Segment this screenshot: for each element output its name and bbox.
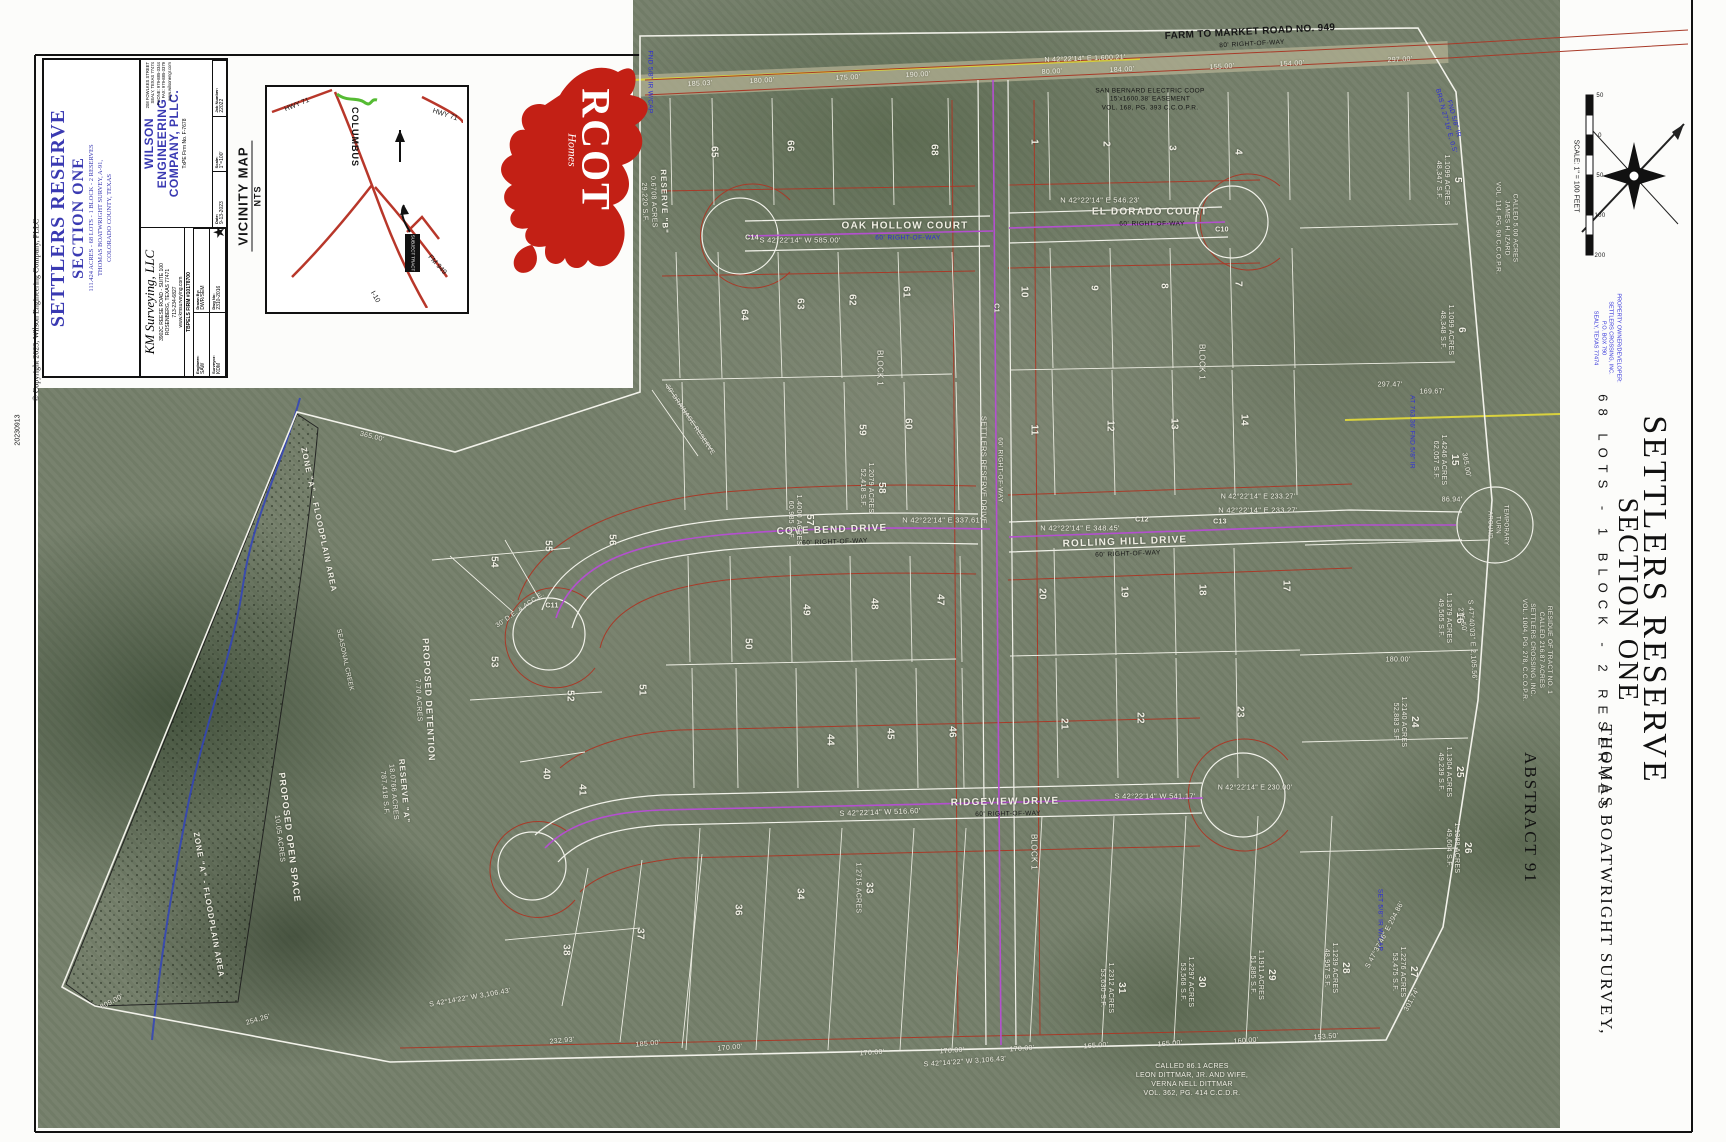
lot-number: 53 (489, 656, 500, 668)
surveyor-block: KM Surveying, LLC 3902C REESE ROAD - SUI… (141, 227, 226, 376)
rcot-homes-logo-text: RCOT Homes (567, 88, 614, 212)
lot-number: 50 (743, 638, 754, 650)
lot-number: 51 (637, 684, 648, 696)
reserve-b-label: RESERVE "B" 0.6708 ACRES 29,220 S.F. (638, 169, 670, 235)
oak-hollow-bearing: S 42°22'14" W 585.00' (759, 236, 840, 245)
lot-label: 61.1099 ACRES48,348 S.F. (1437, 305, 1467, 356)
vicinity-north-arrow-icon (395, 130, 405, 162)
field-drawnby-value: DWR/SEM (200, 285, 206, 309)
lot-number: 23 (1235, 706, 1246, 718)
lot-number: 48 (869, 598, 880, 610)
lot-label: 261.1388 ACRES49,604 S.F. (1443, 823, 1473, 874)
lot-number: 9 (1089, 285, 1100, 291)
lot-label: 151.4246 ACRES62,057 S.F. (1430, 435, 1460, 486)
electric-easement-note: SAN BERNARD ELECTRIC COOP 15'x1600.38' E… (1095, 87, 1204, 112)
dimension-label: 154.00' (1279, 60, 1304, 68)
lot-number: 65 (709, 146, 720, 158)
plat-title-line2: SECTION ONE (70, 60, 88, 376)
scale-tick: 0 (1598, 133, 1602, 139)
block1-label-1: BLOCK 1 (876, 350, 885, 386)
field-date-value: 9-13-2023 (219, 201, 225, 224)
dimension-label: 190.00' (905, 71, 930, 79)
block1-label-3: BLOCK 1 (1030, 834, 1039, 870)
dittmar-line1: CALLED 86.1 ACRES (1136, 1062, 1248, 1071)
dimension-label: 175.00' (835, 74, 860, 82)
ridgeview-bearing-east: S 42°22'14" W 541.17' (1114, 792, 1195, 801)
curve-label: C13 (1213, 519, 1227, 526)
lot-number: 61 (901, 286, 912, 298)
temporary-turnaround-label: TEMPORARY TURN AROUND (1485, 505, 1508, 546)
title-block: SETTLERS RESERVE SECTION ONE 111.424 ACR… (42, 58, 228, 378)
curve-label: C1 (993, 303, 1000, 313)
floodplain-area (66, 414, 318, 1006)
dittmar-line2: LEON DITTMAR, JR. AND WIFE, (1136, 1071, 1248, 1080)
rcot-brand: RCOT (577, 88, 613, 212)
lot-number: 7 (1233, 281, 1244, 287)
dimension-label: N 42°22'14" E 233.27' (1221, 494, 1296, 501)
scale-tick: 50 (1596, 173, 1603, 179)
dimension-label: 184.00' (1109, 66, 1134, 74)
dittmar-line3: VERNA NELL DITTMAR (1136, 1080, 1248, 1089)
residue-line2: CALLED 216.87 ACRES (1536, 599, 1544, 702)
surveyor-name: KM Surveying, LLC (141, 228, 159, 376)
ridgeview-drive-label: RIDGEVIEW DRIVE (951, 796, 1060, 809)
lot-number: 12 (1105, 420, 1116, 432)
curve-label: C12 (1135, 517, 1149, 524)
lot-label: 331.2715 ACRES (853, 863, 874, 914)
lot-number: 38 (561, 944, 572, 956)
lot-number: 34 (795, 888, 806, 900)
dimension-label: 180.00' (749, 77, 774, 85)
lot-number: 21 (1059, 718, 1070, 730)
scale-tick: 200 (1595, 253, 1606, 259)
lot-number: 59 (857, 424, 868, 436)
field-engineer-value: SAW (200, 363, 206, 374)
lot-number: 45 (885, 728, 896, 740)
oak-hollow-row-label: 60' RIGHT-OF-WAY (875, 235, 941, 242)
block1-label-2: BLOCK 1 (1198, 344, 1207, 380)
easement-line2: 15'x1600.38' EASEMENT (1095, 96, 1204, 104)
easement-line1: SAN BERNARD ELECTRIC COOP (1095, 87, 1204, 95)
easement-line3: VOL. 168, PG. 393 C.C.O.P.R. (1095, 104, 1204, 112)
lot-label: 291.1911 ACRES51,885 S.F. (1247, 950, 1277, 1000)
owner-line3: P.O. BOX 790 (1598, 293, 1606, 382)
settlers-reserve-drive-label: SETTLERS RESERVE DRIVE (980, 416, 989, 524)
vicinity-site-label: SUBJECT TRACT (411, 235, 416, 272)
curve-label: C14 (745, 235, 759, 242)
lot-number: 18 (1197, 584, 1208, 596)
engineer-fields: Date:9-13-2023 Scale:1"=100' Job Number:… (212, 60, 226, 227)
lot-number: 11 (1029, 424, 1040, 435)
lot-number: 3 (1167, 145, 1178, 151)
lot-number: 46 (947, 726, 958, 738)
lot-number: 41 (577, 784, 588, 796)
lot-number: 49 (801, 604, 812, 616)
engineer-block: WILSON ENGINEERING COMPANY, PLLC. TxPE F… (141, 60, 226, 227)
field-dwgno-value: 2310-2016 (216, 286, 222, 310)
lot-number: 13 (1169, 418, 1180, 430)
lot-number: 55 (543, 540, 554, 552)
izard-adjoiner-note: CALLED 5.00 ACRES JAMES H. IZARD VOL. 11… (1493, 182, 1518, 274)
yellow-utility-line (1345, 414, 1560, 420)
lot-number: 47 (935, 594, 946, 606)
ridgeview-row-label: 60' RIGHT-OF-WAY (975, 810, 1041, 818)
field-surveyor-value: KDM (216, 363, 222, 374)
lot-number: 36 (733, 904, 744, 916)
lot-number: 64 (739, 309, 750, 321)
oak-hollow-court-label: OAK HOLLOW COURT (842, 221, 969, 232)
field-jobnumber-value: 22022 (219, 99, 225, 113)
vicinity-map-nts: NTS (253, 140, 263, 251)
dimension-label: 185.03' (687, 80, 712, 88)
lot-number: 60 (903, 418, 914, 430)
lot-number: 52 (565, 690, 576, 702)
reserve-b-line1: RESERVE "B" (657, 169, 670, 234)
dimension-label: 297.00' (1387, 56, 1412, 64)
dimension-label: N 42°22'14" E 230.00' (1218, 785, 1293, 792)
turnaround-line2: TURN (1493, 505, 1501, 546)
plat-subtitle-acres: 111.424 ACRES - 68 LOTS - 1 BLOCK - 2 RE… (88, 60, 97, 376)
cove-bend-bearing: N 42°22'14" E 337.61' (902, 516, 981, 525)
el-dorado-court-label: EL DORADO COURT (1092, 207, 1208, 218)
star-icon: ★ (210, 226, 228, 239)
izard-line2: JAMES H. IZARD (1502, 182, 1510, 274)
residue-line3: SETTLERS CROSSING, INC. (1528, 599, 1536, 702)
lot-number: 1 (1029, 139, 1040, 145)
lot-label: 311.2312 ACRES53,630 S.F. (1097, 963, 1127, 1014)
lot-number: 20 (1037, 588, 1048, 600)
lot-label: 241.2140 ACRES52,883 S.F. (1390, 697, 1420, 748)
lot-number: 63 (795, 298, 806, 310)
owner-line4: SEALY, TEXAS 77474 (1591, 293, 1599, 382)
lot-label: 571.4000 ACRES60,985 S.F. (785, 495, 815, 546)
el-dorado-row-label: 60' RIGHT-OF-WAY (1119, 221, 1185, 228)
lot-label: 51.1099 ACRES48,347 S.F. (1433, 155, 1463, 206)
residue-line4: VOL. 1004, PG. 278, C.C.O.P.R. (1519, 599, 1527, 702)
lot-number: 37 (635, 928, 646, 940)
lot-number: 68 (929, 144, 940, 156)
margin-title-line2: SECTION ONE (1611, 498, 1643, 703)
vicinity-roads (267, 87, 463, 308)
margin-survey-label: THOMAS BOATWRIGHT SURVEY, (1596, 724, 1616, 1035)
reserve-a-label: RESERVE "A" 18.0766 ACRES 787,418 S.F. (376, 758, 411, 825)
lot-number: 19 (1119, 586, 1130, 598)
owner-line1: PROPERTY OWNER/DEVELOPER: (1614, 293, 1622, 382)
scale-bar (1586, 95, 1593, 255)
engineer-website: www.wilsonengr.com (167, 62, 172, 108)
lot-number: 56 (607, 534, 618, 546)
dimension-label: 180.00' (1386, 657, 1411, 664)
dittmar-adjoiner-note: CALLED 86.1 ACRES LEON DITTMAR, JR. AND … (1136, 1062, 1248, 1098)
lot-number: 66 (785, 140, 796, 152)
lot-label: 301.2297 ACRES53,568 S.F. (1177, 957, 1207, 1008)
residue-tract-note: RESIDUE OF TRACT NO. 1 CALLED 216.87 ACR… (1519, 599, 1553, 702)
curve-label: C11 (545, 603, 558, 610)
el-dorado-bearing: N 42°22'14" E 546.23' (1060, 196, 1139, 205)
dimension-label: 169.67' (1420, 389, 1445, 396)
dimension-label: 297.47' (1378, 382, 1403, 389)
engineer-address: 208 FOWLKES STREET SEALY, TEXAS 77474 PH… (145, 62, 172, 108)
izard-line3: VOL. 114, PG. 90 C.C.O.P.R. (1493, 182, 1501, 274)
turnaround-line3: AROUND (1485, 505, 1493, 546)
lot-label: 581.2079 ACRES52,418 S.F. (857, 463, 887, 514)
title-block-title: SETTLERS RESERVE SECTION ONE 111.424 ACR… (44, 60, 141, 376)
curve-label: C10 (1215, 227, 1229, 234)
scale-tick: 100 (1595, 213, 1606, 219)
residue-line1: RESIDUE OF TRACT NO. 1 (1544, 599, 1552, 702)
settlers-reserve-row-label: 60' RIGHT-OF-WAY (997, 437, 1004, 503)
surveyor-firm-number: TBPELS FIRM #10178700 (184, 228, 193, 376)
owner-developer-block: PROPERTY OWNER/DEVELOPER: SETTLERS CROSS… (1591, 293, 1622, 382)
engineer-firm-number: TxPE Firm No. F-7678 (181, 60, 190, 227)
lot-number: 8 (1159, 283, 1170, 289)
lot-label: 251.1304 ACRES49,239 S.F. (1435, 747, 1465, 798)
vicinity-town-label: COLUMBUS (350, 107, 360, 167)
date-stamp: 20230913 (15, 414, 22, 445)
lot-number: 2 (1101, 141, 1112, 147)
dimension-label: 80.00' (1042, 68, 1063, 76)
lot-number: 22 (1135, 712, 1146, 724)
lot-label: 281.1239 ACRES48,957 S.F. (1321, 943, 1351, 994)
surveyor-fields: Engineer:SAW Drawn By:DWR/SEM Surveyor:K… (193, 228, 226, 376)
plat-sheet: COLUMBUS HWY 71 HWY 71 FM 949 I-10 SUBJE… (0, 0, 1726, 1142)
scale-tick: 50 (1596, 93, 1603, 99)
lot-number: 62 (847, 294, 858, 306)
dimension-label: 86.94' (1442, 497, 1463, 504)
rolling-hill-bearing-east: N 42°22'14" E 233.27' (1218, 506, 1297, 515)
plat-title-line1: SETTLERS RESERVE (47, 60, 70, 376)
lot-number: 4 (1233, 149, 1244, 155)
lot-number: 40 (541, 768, 552, 780)
lot-number: 14 (1239, 414, 1250, 426)
copyright-text: © Copyright 2023, Wilson Engineering Com… (32, 219, 41, 401)
lot-number: 10 (1019, 286, 1030, 298)
margin-abstract-label: ABSTRACT 91 (1520, 752, 1540, 884)
lot-number: 17 (1281, 580, 1292, 592)
plat-subtitle-county: COLORADO COUNTY, TEXAS (106, 60, 115, 376)
plat-subtitle-survey: THOMAS BOATWRIGHT SURVEY, A-91, (97, 60, 106, 376)
scale-bar-label: SCALE: 1" = 100 FEET (1573, 140, 1580, 213)
rolling-hill-bearing: N 42°22'14" E 348.45' (1040, 524, 1119, 533)
vicinity-map: COLUMBUS HWY 71 HWY 71 FM 949 I-10 SUBJE… (265, 85, 469, 314)
monument-pob: FND 5/8" IR W/CAP (647, 50, 654, 113)
monument-east: AT 763.36' FND 5/8" IR (1409, 395, 1416, 469)
lot-number: 44 (825, 734, 836, 746)
izard-line1: CALLED 5.00 ACRES (1510, 182, 1518, 274)
field-scale-value: 1"=100' (219, 152, 225, 169)
owner-line2: SETTLERS CROSSING, INC. (1606, 293, 1614, 382)
vicinity-river (337, 94, 377, 104)
turnaround-line1: TEMPORARY (1501, 505, 1509, 546)
lot-number: 54 (489, 556, 500, 568)
dimension-label: 155.00' (1209, 63, 1234, 71)
vicinity-map-title-text: VICINITY MAP (236, 140, 253, 251)
vicinity-map-title: VICINITY MAP NTS (236, 140, 263, 251)
dittmar-line4: VOL. 362, PG. 414 C.C.D.R. (1136, 1089, 1248, 1098)
